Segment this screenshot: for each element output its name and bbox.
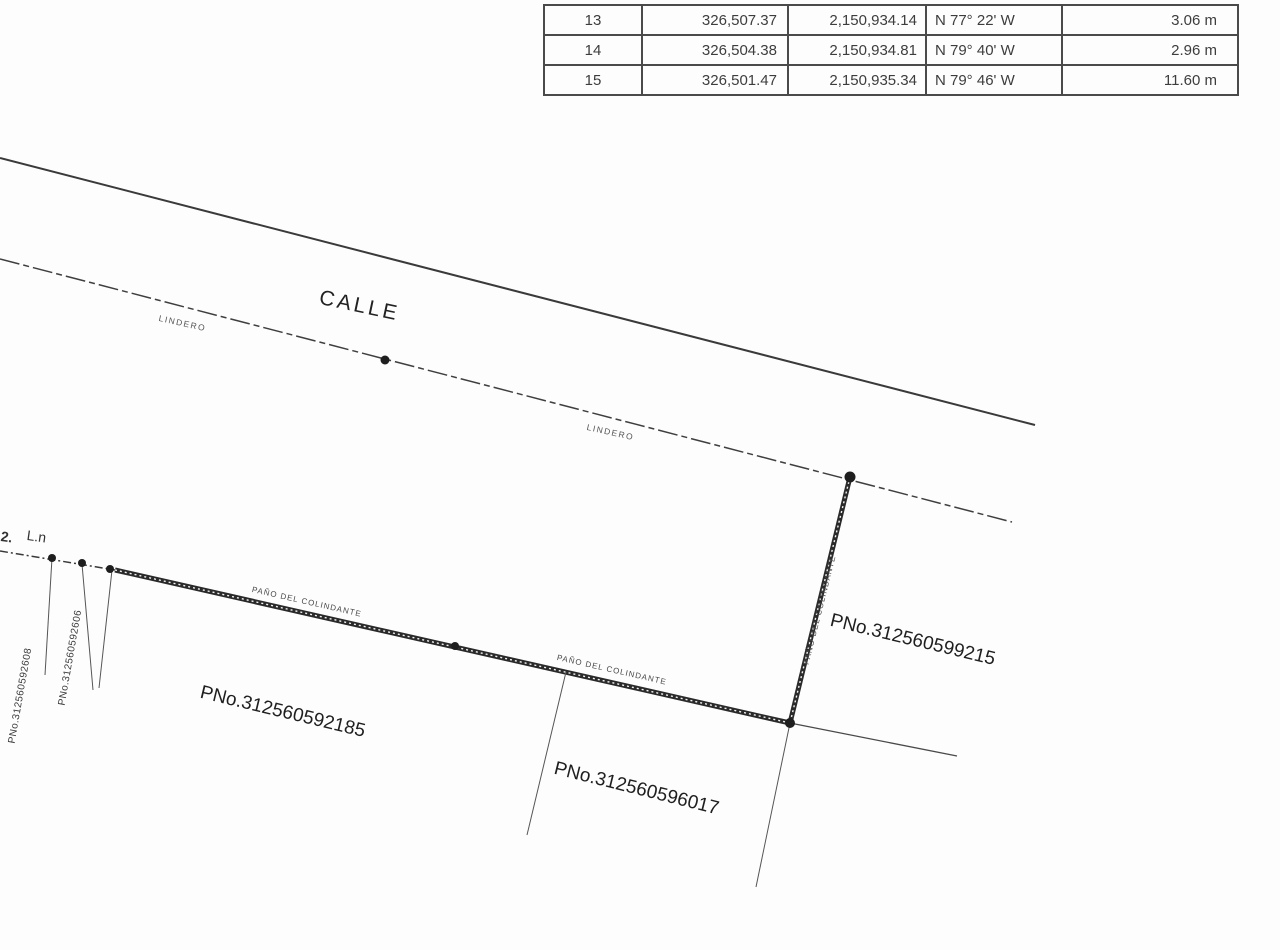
cell-point-no: 15 — [544, 65, 642, 95]
corner-note-1: 2. — [0, 528, 14, 545]
survey-point-marker — [845, 472, 856, 483]
cell-y-coord: 2,150,934.81 — [788, 35, 926, 65]
cell-y-coord: 2,150,934.14 — [788, 5, 926, 35]
leader-line-1 — [45, 558, 52, 675]
leader-line-4 — [527, 672, 566, 835]
leader-line-5 — [756, 723, 790, 887]
cell-point-no: 13 — [544, 5, 642, 35]
cell-bearing: N 79° 40' W — [926, 35, 1062, 65]
table-row: 13 326,507.37 2,150,934.14 N 77° 22' W 3… — [544, 5, 1238, 35]
leader-line-3 — [99, 570, 112, 688]
boundary-extension-line — [790, 723, 957, 756]
survey-drawing — [0, 0, 1280, 950]
leader-line-2 — [82, 564, 93, 690]
cell-point-no: 14 — [544, 35, 642, 65]
cell-distance: 3.06 m — [1062, 5, 1238, 35]
cell-x-coord: 326,501.47 — [642, 65, 788, 95]
cell-bearing: N 77° 22' W — [926, 5, 1062, 35]
coordinate-table: 13 326,507.37 2,150,934.14 N 77° 22' W 3… — [543, 4, 1239, 96]
corner-note-2: L.n — [26, 527, 48, 546]
cell-y-coord: 2,150,935.34 — [788, 65, 926, 95]
survey-point-marker — [451, 642, 459, 650]
table-row: 14 326,504.38 2,150,934.81 N 79° 40' W 2… — [544, 35, 1238, 65]
survey-point-marker — [785, 718, 795, 728]
cell-distance: 11.60 m — [1062, 65, 1238, 95]
cell-x-coord: 326,507.37 — [642, 5, 788, 35]
table-row: 15 326,501.47 2,150,935.34 N 79° 46' W 1… — [544, 65, 1238, 95]
street-edge-line — [0, 158, 1035, 425]
survey-point-marker — [106, 565, 114, 573]
lindero-dashed-line — [0, 259, 1012, 522]
survey-point-marker — [381, 356, 390, 365]
cell-bearing: N 79° 46' W — [926, 65, 1062, 95]
cell-distance: 2.96 m — [1062, 35, 1238, 65]
left-boundary-segment — [0, 551, 115, 570]
cell-x-coord: 326,504.38 — [642, 35, 788, 65]
survey-point-marker — [48, 554, 56, 562]
survey-point-marker — [78, 559, 86, 567]
